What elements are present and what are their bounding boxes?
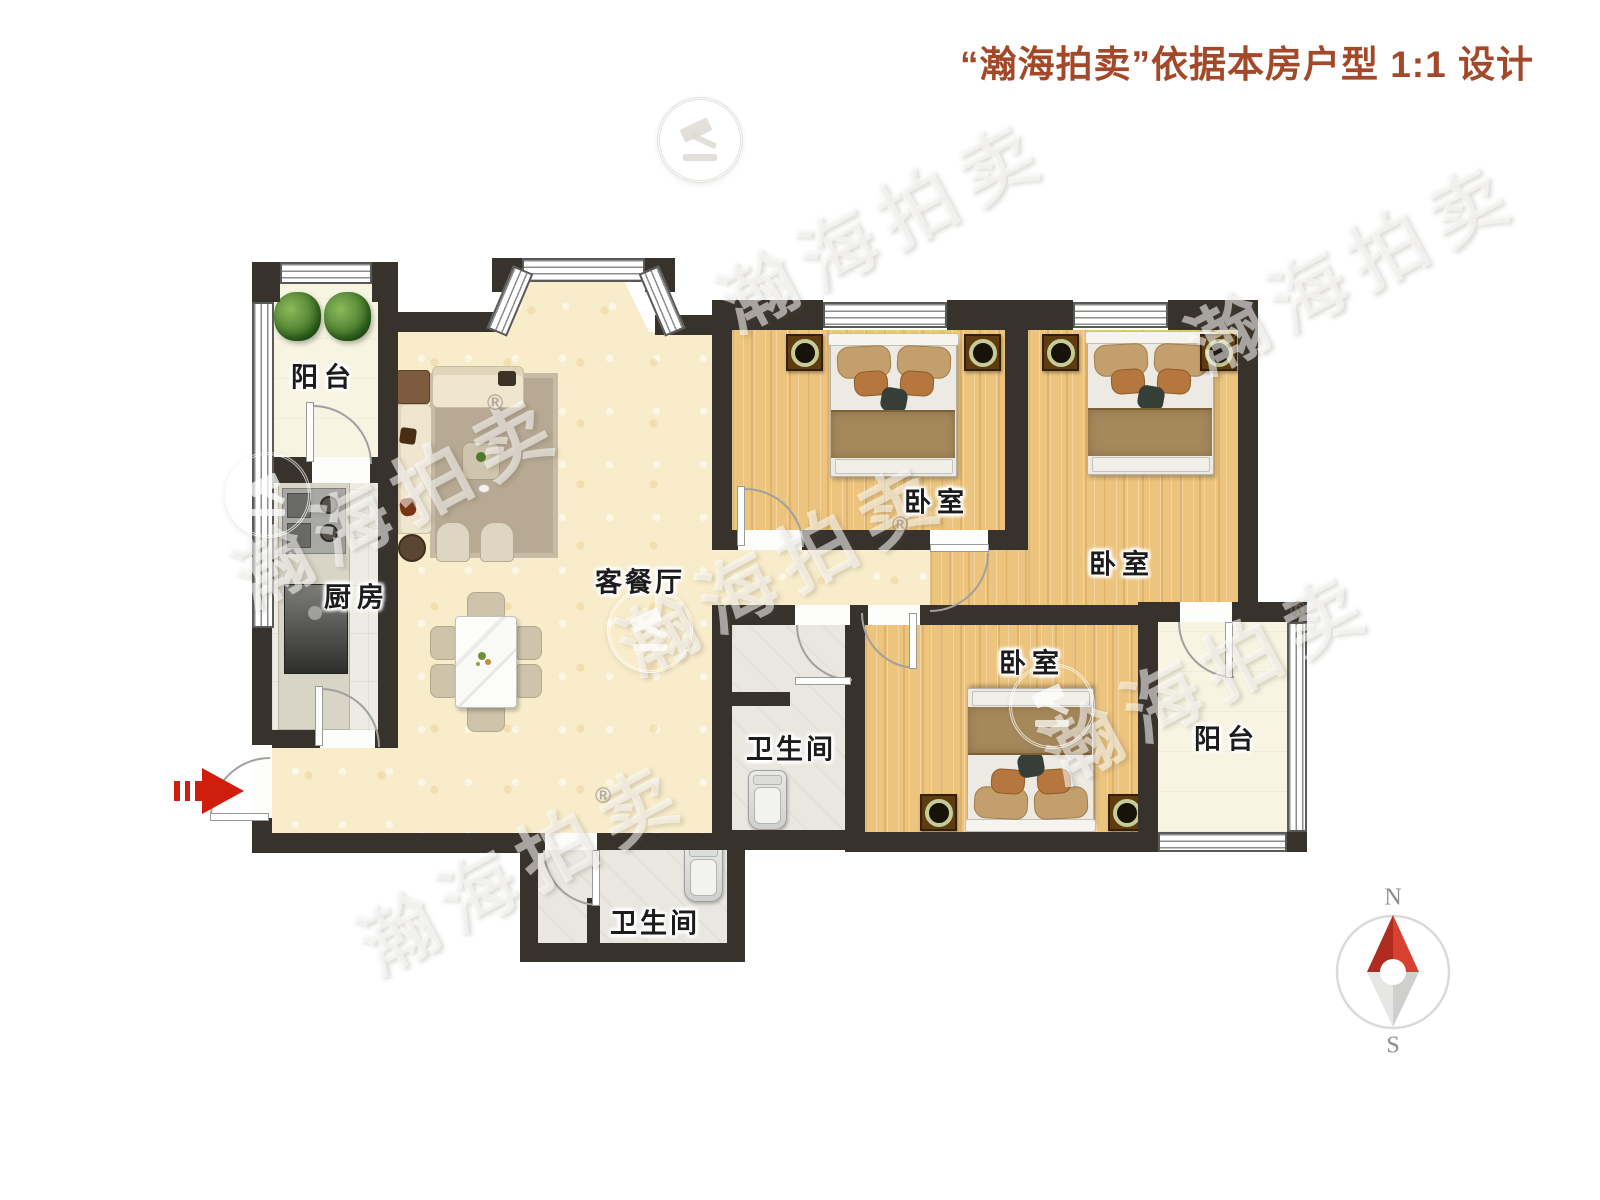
- watermark-logo-icon: [225, 452, 311, 538]
- toilet: [684, 842, 723, 902]
- side-table: [396, 370, 430, 404]
- gavel-base: [683, 154, 717, 161]
- page-title: “瀚海拍卖”依据本房户型 1:1 设计: [960, 34, 1534, 88]
- registered-mark: ®: [595, 783, 611, 809]
- watermark-logo-icon: [657, 97, 743, 183]
- blanket: [1088, 408, 1212, 456]
- refrigerator-handle: [308, 606, 322, 620]
- toilet: [748, 770, 787, 830]
- window: [1158, 832, 1287, 852]
- bay-window: [522, 258, 645, 282]
- dining-chair: [516, 664, 542, 698]
- wall-segment: [920, 605, 1138, 625]
- wall-segment: [712, 312, 732, 550]
- floor-plan: 阳台 厨房 客餐厅 卧室 卧室 卧室 卫生间 卫生间 阳台 瀚海拍卖 瀚海拍卖 …: [0, 0, 1600, 1200]
- dining-chair: [430, 626, 456, 660]
- room-label-balcony-right: 阳台: [1194, 718, 1260, 757]
- gavel-base: [1035, 720, 1069, 727]
- wall-segment: [947, 300, 1073, 330]
- nightstand: [786, 334, 823, 371]
- wall-segment: [727, 833, 745, 962]
- window: [1073, 302, 1168, 328]
- door-leaf: [315, 686, 323, 746]
- dining-chair: [430, 664, 456, 698]
- registered-mark: ®: [1290, 597, 1306, 623]
- room-label-bathroom-2: 卫生间: [610, 902, 700, 941]
- wall-segment: [398, 312, 500, 332]
- room-label-bathroom-1: 卫生间: [746, 728, 836, 767]
- entry-hall-floor: [272, 745, 398, 833]
- wall-segment: [1005, 330, 1028, 550]
- room-label-bedroom-2: 卧室: [1089, 543, 1155, 582]
- table-flowers: [478, 652, 486, 660]
- dining-chair: [467, 706, 505, 732]
- door-leaf: [909, 613, 917, 669]
- wall-segment: [988, 530, 1028, 550]
- room-label-living-dining: 客餐厅: [595, 561, 685, 600]
- room-label-balcony-top-left: 阳台: [291, 356, 357, 395]
- gavel-base: [633, 644, 667, 651]
- compass-south-label: S: [1386, 1033, 1399, 1060]
- door-leaf: [795, 677, 851, 685]
- wall-segment: [520, 943, 745, 962]
- entrance-arrow-icon: [174, 768, 244, 814]
- dining-chair: [467, 592, 505, 618]
- room-label-bedroom-1: 卧室: [904, 481, 970, 520]
- wall-segment: [1138, 602, 1180, 622]
- headboard: [965, 819, 1096, 832]
- watermark-logo-icon: [607, 587, 693, 673]
- wall-stub: [732, 692, 790, 706]
- wall-segment: [252, 262, 280, 302]
- armchair: [480, 522, 514, 562]
- window: [280, 262, 372, 284]
- potted-plant: [324, 292, 371, 341]
- registered-mark: ®: [487, 390, 503, 416]
- entry-door-leaf: [210, 813, 269, 821]
- nightstand: [1042, 334, 1079, 371]
- potted-plant: [274, 292, 321, 341]
- room-label-bedroom-3: 卧室: [999, 642, 1065, 681]
- dining-table: [455, 616, 517, 708]
- wall-segment: [1287, 832, 1307, 852]
- headboard: [828, 333, 959, 346]
- compass-north-label: N: [1384, 885, 1401, 912]
- room-label-kitchen: 厨房: [324, 576, 390, 615]
- window: [823, 302, 947, 328]
- foot-bench: [1092, 457, 1210, 472]
- watermark-text: 瀚海拍卖: [1165, 129, 1535, 395]
- nightstand: [964, 334, 1001, 371]
- dining-chair: [516, 626, 542, 660]
- nightstand: [920, 794, 957, 831]
- wall-segment: [252, 628, 272, 745]
- wall-segment: [845, 832, 1158, 852]
- door-leaf: [930, 544, 989, 552]
- gavel-base: [251, 509, 285, 516]
